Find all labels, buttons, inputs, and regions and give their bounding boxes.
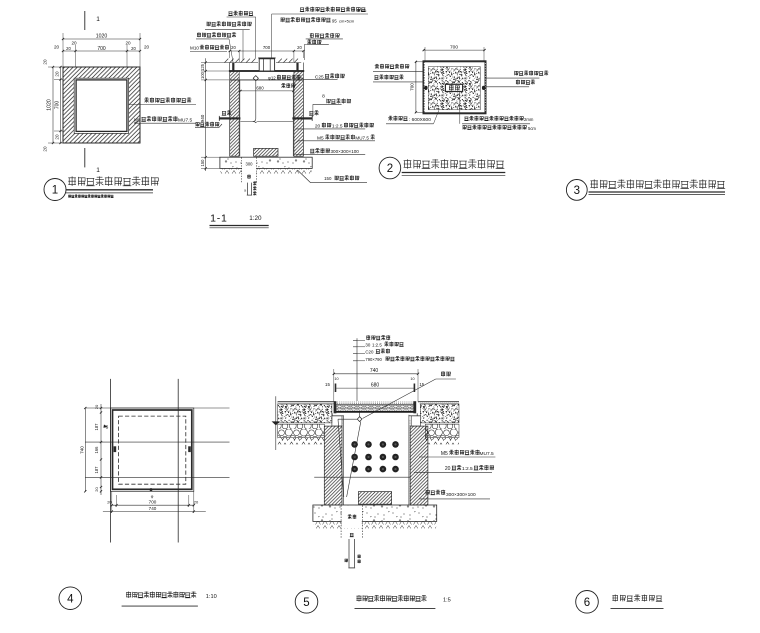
svg-text:5: 5 (303, 597, 309, 609)
svg-text:1:2.5: 1:2.5 (462, 466, 473, 472)
svg-text:740: 740 (370, 368, 379, 374)
svg-text:680: 680 (256, 85, 264, 90)
svg-text:C20: C20 (365, 350, 374, 355)
svg-text:3: 3 (574, 185, 580, 197)
svg-text:1:20: 1:20 (249, 215, 262, 222)
svg-text:30: 30 (365, 343, 370, 348)
svg-text:MU7.5: MU7.5 (178, 117, 192, 123)
svg-text:20: 20 (107, 499, 112, 504)
svg-text:: 600X600: : 600X600 (409, 117, 431, 123)
svg-text:1020: 1020 (47, 99, 53, 111)
svg-text:20: 20 (445, 466, 451, 472)
svg-text:166: 166 (94, 446, 99, 454)
svg-text:300×300×100: 300×300×100 (331, 149, 360, 154)
svg-text:700: 700 (149, 499, 157, 504)
svg-text:680: 680 (371, 382, 380, 388)
svg-text:1020: 1020 (96, 34, 108, 40)
svg-text:700: 700 (55, 101, 61, 110)
svg-text:6: 6 (584, 597, 590, 609)
svg-text:740: 740 (79, 446, 84, 454)
svg-text:1: 1 (52, 185, 58, 197)
svg-text:95: 95 (332, 18, 337, 23)
svg-text:700: 700 (410, 83, 415, 91)
svg-text:125: 125 (200, 63, 205, 71)
svg-text:5cm: 5cm (528, 126, 536, 131)
svg-text:2mm: 2mm (357, 8, 367, 13)
svg-text:M10: M10 (190, 46, 199, 51)
svg-text:≥: ≥ (244, 189, 246, 193)
svg-text:150: 150 (200, 159, 205, 167)
svg-text:20: 20 (71, 41, 77, 46)
svg-text:700: 700 (450, 44, 458, 50)
svg-text:8: 8 (322, 94, 325, 100)
svg-text:940: 940 (200, 114, 205, 122)
svg-text:20: 20 (54, 45, 60, 50)
svg-text:cm×5cm: cm×5cm (339, 18, 355, 23)
svg-text:20: 20 (66, 46, 71, 51)
svg-text:1: 1 (96, 167, 100, 174)
svg-text:100: 100 (200, 71, 205, 79)
svg-text:700: 700 (97, 46, 106, 52)
svg-text:20: 20 (125, 41, 131, 46)
svg-text:790×790: 790×790 (365, 357, 382, 362)
svg-text:20: 20 (43, 59, 48, 65)
svg-text:15: 15 (325, 382, 330, 387)
svg-text:1:5: 1:5 (443, 598, 451, 604)
svg-text:1: 1 (96, 16, 100, 23)
svg-text:187: 187 (94, 466, 99, 474)
svg-text:20: 20 (94, 404, 99, 409)
svg-text:10: 10 (410, 377, 414, 381)
svg-text:300×300×100: 300×300×100 (446, 492, 476, 498)
svg-text:20: 20 (55, 134, 60, 140)
svg-text:4: 4 (67, 593, 74, 605)
svg-text:20: 20 (43, 146, 48, 152)
svg-text:1-1: 1-1 (210, 213, 228, 225)
svg-text:20: 20 (231, 45, 236, 50)
svg-text:300: 300 (246, 161, 254, 166)
svg-text:700: 700 (263, 45, 271, 50)
svg-text:150: 150 (324, 176, 332, 181)
svg-text:187: 187 (94, 423, 99, 431)
svg-text:20: 20 (131, 46, 136, 51)
svg-text:2mm: 2mm (524, 117, 534, 122)
svg-text:2: 2 (387, 163, 393, 175)
svg-text:MU7.5: MU7.5 (480, 451, 494, 457)
svg-text:MU7.5: MU7.5 (355, 136, 369, 141)
svg-text:M5: M5 (441, 451, 448, 457)
svg-text:φ: φ (151, 494, 154, 499)
svg-text:20: 20 (55, 71, 60, 77)
svg-text:20: 20 (94, 487, 99, 492)
svg-text:10: 10 (334, 377, 338, 381)
svg-text:740: 740 (149, 506, 157, 511)
svg-text:20: 20 (144, 45, 150, 50)
svg-text:20: 20 (297, 45, 302, 50)
svg-text:1:10: 1:10 (206, 594, 217, 600)
svg-text:20: 20 (194, 499, 199, 504)
svg-text:1:2.5: 1:2.5 (372, 343, 382, 348)
svg-text:φ12: φ12 (268, 75, 276, 80)
